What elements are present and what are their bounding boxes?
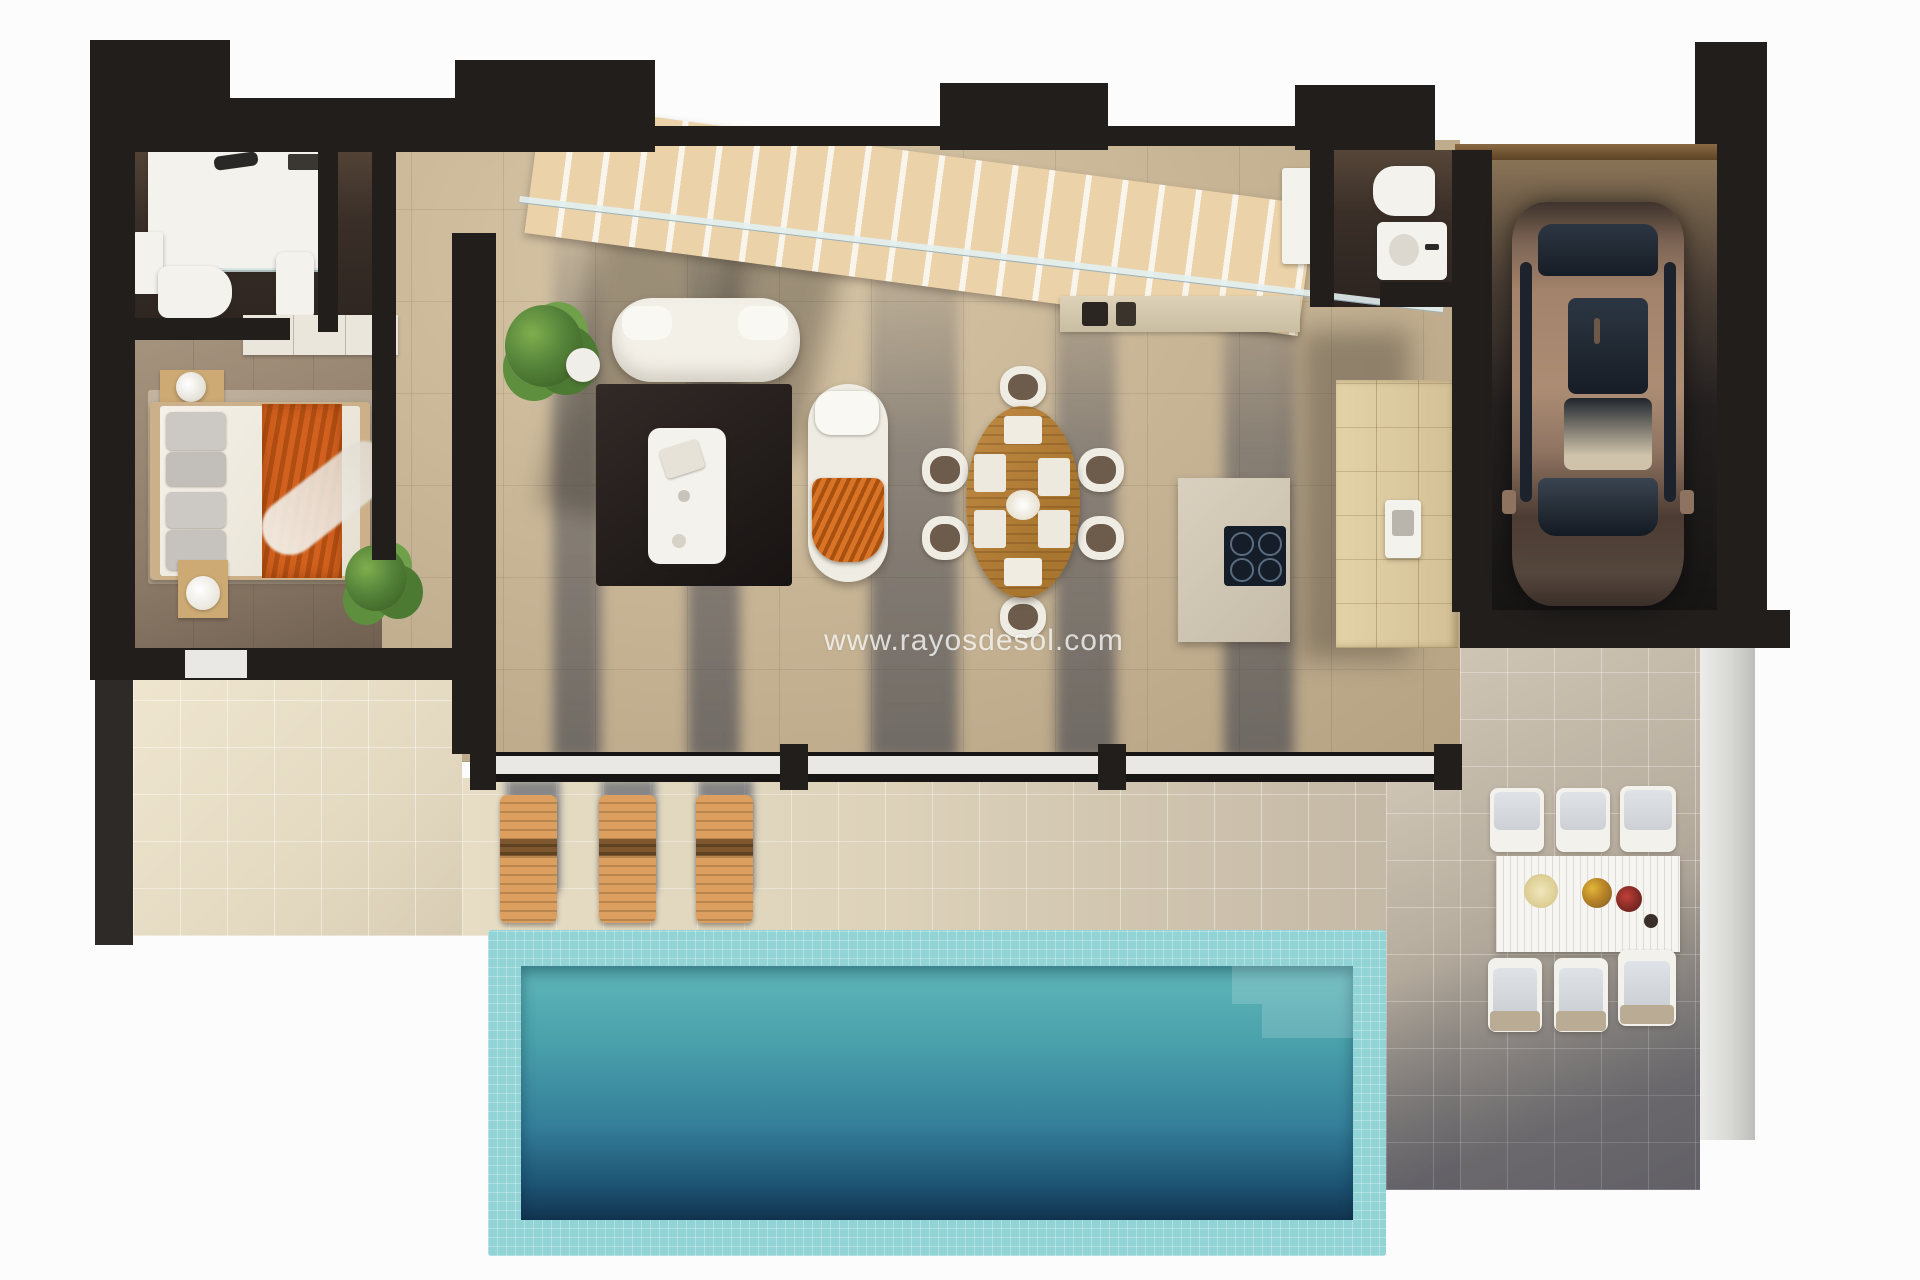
chair-cushion xyxy=(1560,792,1605,830)
kitchen-sink xyxy=(1385,500,1421,558)
garage-right-wall xyxy=(1717,42,1767,612)
placemat xyxy=(1038,510,1070,548)
coffee-table xyxy=(648,428,726,564)
outdoor-chair xyxy=(1488,958,1542,1032)
chair-footrest xyxy=(1620,1005,1673,1025)
cup xyxy=(1644,914,1658,928)
chair-cushion xyxy=(1086,456,1115,484)
lounger-headrest xyxy=(696,839,753,857)
dining-chair xyxy=(922,516,968,560)
terrace-right-wall xyxy=(1700,645,1755,1140)
bedside-lamp xyxy=(176,372,206,402)
dining-chair xyxy=(922,448,968,492)
car xyxy=(1512,202,1684,606)
wardrobe-seam xyxy=(293,315,294,355)
placemat xyxy=(974,510,1006,548)
bathtub xyxy=(276,252,314,320)
outdoor-chair xyxy=(1620,786,1676,852)
dining-chair xyxy=(1078,448,1124,492)
decor-tray xyxy=(658,439,705,480)
car-windshield xyxy=(1538,478,1658,536)
chair-cushion xyxy=(930,524,959,552)
bedroom-door-threshold xyxy=(185,650,247,678)
chaise-throw-blanket xyxy=(812,478,884,562)
induction-cooktop xyxy=(1224,526,1286,586)
centerpiece xyxy=(1006,490,1040,520)
wc-bottom-wall xyxy=(1380,282,1452,307)
bed-pillow xyxy=(166,412,226,450)
chair-cushion xyxy=(1624,790,1671,830)
berry-plate xyxy=(1616,886,1642,912)
car-rear-window xyxy=(1538,224,1658,276)
car-sunroof xyxy=(1568,298,1648,394)
sun-lounger xyxy=(500,795,557,923)
bed-pillow xyxy=(166,492,226,528)
door-post xyxy=(780,744,808,790)
wc-toilet xyxy=(1373,166,1435,216)
sofa-cushion xyxy=(738,306,788,340)
bed-pillow xyxy=(166,452,226,486)
nightstand-tray xyxy=(186,576,220,610)
bedroom-bottom-wall xyxy=(90,648,472,680)
burner xyxy=(1230,558,1254,582)
wc-sink xyxy=(1377,222,1447,280)
door-post xyxy=(1098,744,1126,790)
dining-chair xyxy=(1078,516,1124,560)
car-mirror xyxy=(1680,490,1694,514)
garage-bottom-wall xyxy=(1460,610,1790,648)
top-wall xyxy=(90,98,460,152)
door-post xyxy=(470,744,496,790)
chair-cushion xyxy=(930,456,959,484)
burner xyxy=(1230,532,1254,556)
chaise-pillow xyxy=(815,391,879,435)
car-front-cabin xyxy=(1564,398,1652,470)
wc-left-wall xyxy=(1310,140,1334,307)
pool-steps xyxy=(1262,1004,1353,1038)
outdoor-dining-table xyxy=(1496,856,1680,952)
left-wall xyxy=(90,98,135,680)
bedroom-right-wall xyxy=(372,140,396,560)
burner xyxy=(1258,532,1282,556)
outdoor-chair xyxy=(1490,788,1544,852)
sofa xyxy=(612,298,800,382)
countertop-appliance xyxy=(1082,302,1108,326)
chair-footrest xyxy=(1490,1011,1540,1030)
top-wall-block xyxy=(455,60,655,152)
decor-cup xyxy=(672,534,686,548)
door-post xyxy=(1434,744,1462,790)
car-side-window xyxy=(1520,262,1532,502)
placemat xyxy=(1004,416,1042,444)
kitchen-wall-counter xyxy=(1060,296,1300,332)
pool-steps xyxy=(1232,966,1353,1004)
terrace-left-wall xyxy=(95,672,133,945)
sun-hat xyxy=(1524,874,1558,908)
kitchen-island xyxy=(1178,478,1290,642)
top-wall-lintel xyxy=(1108,126,1298,146)
dining-chair xyxy=(1000,366,1046,408)
sun-lounger xyxy=(696,795,753,923)
floor-plan-render: www.rayosdesol.com xyxy=(0,0,1920,1280)
wardrobe-seam xyxy=(345,315,346,355)
chair-cushion xyxy=(1086,524,1115,552)
dining-table xyxy=(966,406,1080,598)
fruit-plate xyxy=(1582,878,1612,908)
shower-shelf xyxy=(288,154,320,170)
chair-cushion xyxy=(1494,792,1539,830)
bathroom-bottom-wall xyxy=(135,318,290,340)
car-side-window xyxy=(1664,262,1676,502)
sun-lounger xyxy=(599,795,656,923)
top-wall-block xyxy=(940,83,1108,150)
lounger-headrest xyxy=(599,839,656,857)
sliding-glass-door xyxy=(470,752,1460,782)
sink-basin xyxy=(1392,510,1414,536)
chair-cushion xyxy=(1008,374,1037,401)
car-antenna xyxy=(1594,318,1600,344)
garage-left-wall xyxy=(1452,150,1492,612)
pool-water xyxy=(521,966,1353,1220)
car-mirror xyxy=(1502,490,1516,514)
faucet xyxy=(1425,244,1439,250)
watermark: www.rayosdesol.com xyxy=(824,624,1124,658)
plant-pot xyxy=(566,348,600,382)
burner xyxy=(1258,558,1282,582)
decor-cup xyxy=(678,490,690,502)
shower-head xyxy=(213,151,259,171)
cabinet-seam xyxy=(1376,380,1377,648)
outdoor-chair xyxy=(1618,950,1676,1026)
sofa-cushion xyxy=(622,306,672,340)
sink-basin xyxy=(1389,234,1419,266)
placemat xyxy=(1038,458,1070,496)
chair-footrest xyxy=(1556,1011,1606,1030)
bathroom-inner-wall xyxy=(318,148,338,332)
outdoor-chair xyxy=(1556,788,1610,852)
placemat xyxy=(1004,558,1042,586)
terrace-left xyxy=(133,672,462,936)
outdoor-chair xyxy=(1554,958,1608,1032)
countertop-appliance xyxy=(1116,302,1136,326)
lounger-headrest xyxy=(500,839,557,857)
top-wall-lintel xyxy=(655,126,945,146)
bathroom-toilet xyxy=(158,266,232,318)
garage-door xyxy=(1455,144,1717,160)
placemat xyxy=(974,454,1006,492)
